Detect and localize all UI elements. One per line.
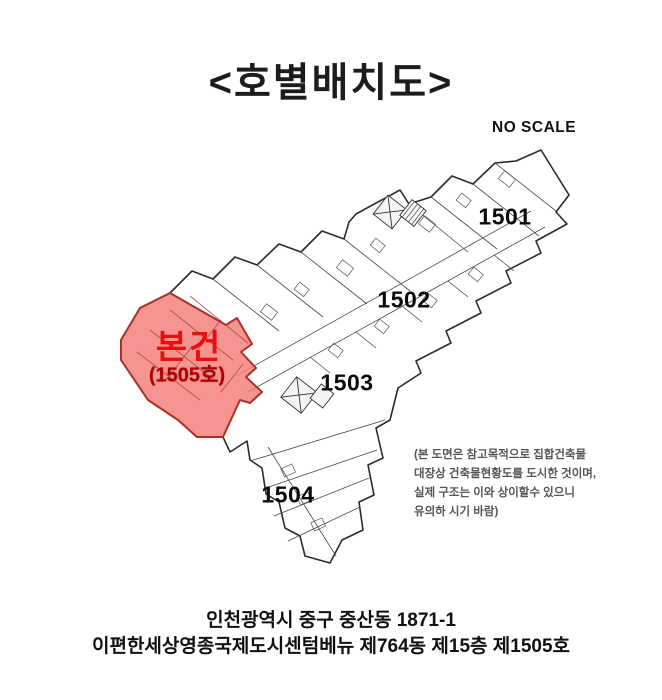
unit-label-1504: 1504 xyxy=(261,482,314,509)
disclaimer-line-2: 대장상 건축물현황도를 도시한 것이며, xyxy=(414,465,654,484)
unit-label-1503: 1503 xyxy=(320,370,373,397)
unit-label-1501: 1501 xyxy=(478,204,531,231)
disclaimer-line-3: 실제 구조는 이와 상이할수 있으니 xyxy=(414,484,654,503)
disclaimer-line-4: 유의하 시기 바람) xyxy=(414,503,654,522)
address-line-2: 이편한세상영종국제도시센텀베뉴 제764동 제15층 제1505호 xyxy=(0,631,662,658)
disclaimer-note: (본 도면은 참고목적으로 집합건축물 대장상 건축물현황도를 도시한 것이며,… xyxy=(414,446,654,522)
disclaimer-line-1: (본 도면은 참고목적으로 집합건축물 xyxy=(414,446,654,465)
building-floor-plan xyxy=(0,0,662,700)
unit-label-1502: 1502 xyxy=(377,287,430,314)
floor-plan-document: <호별배치도> NO SCALE xyxy=(0,0,662,700)
subject-unit-number: (1505호) xyxy=(149,359,225,388)
address-line-1: 인천광역시 중구 중산동 1871-1 xyxy=(0,605,662,632)
